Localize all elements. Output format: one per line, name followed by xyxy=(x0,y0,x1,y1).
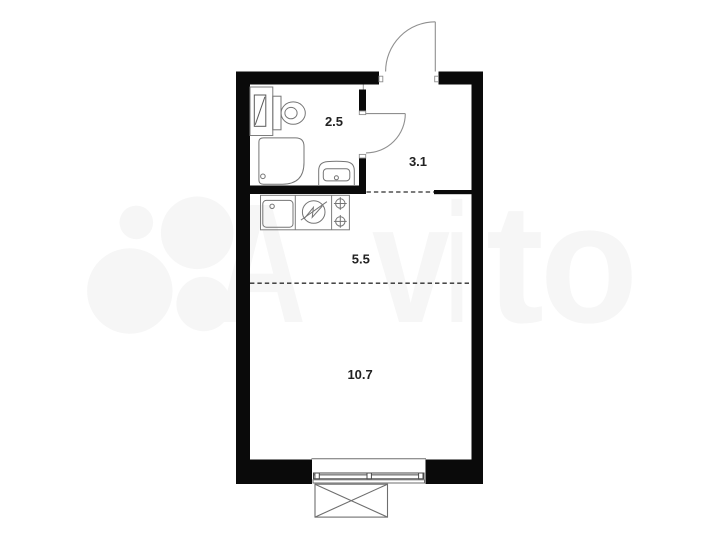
svg-text:2.5: 2.5 xyxy=(325,114,343,129)
svg-text:10.7: 10.7 xyxy=(347,367,372,382)
svg-text:Avito: Avito xyxy=(216,169,638,359)
svg-text:3.1: 3.1 xyxy=(409,154,427,169)
svg-text:5.5: 5.5 xyxy=(352,252,370,267)
